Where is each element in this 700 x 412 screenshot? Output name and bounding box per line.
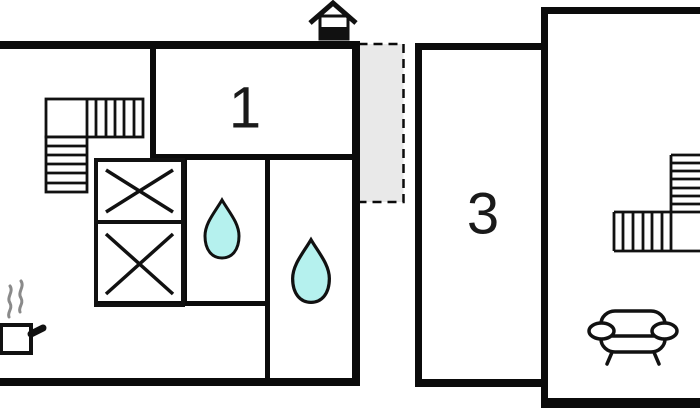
house-entrance-icon: [310, 3, 356, 39]
staircase-left-upper-run: [46, 99, 143, 137]
floorplan-canvas: 1 3: [0, 0, 700, 412]
steam-line: [9, 286, 12, 317]
room3-left-wall: [415, 43, 422, 387]
room3-top-wall: [415, 43, 547, 50]
walls: [0, 7, 700, 408]
sofa-armrest: [652, 323, 677, 339]
room3-bottom-wall: [415, 379, 548, 387]
water-drop-icon: [293, 240, 330, 303]
stove-pot: [1, 325, 31, 353]
right-unit-left-wall: [541, 7, 548, 408]
stove-steam-icon: [1, 281, 43, 353]
steam-line: [20, 281, 23, 312]
room1-label: 1: [229, 76, 261, 141]
floorplan-drawing: 1 3: [0, 0, 700, 412]
right-unit-top-wall: [541, 7, 700, 14]
sofa-armrest: [589, 323, 614, 339]
room1-left-wall: [150, 49, 156, 155]
bed-cross-icon-group: [96, 160, 183, 305]
porch-area: [359, 44, 404, 202]
right-unit-bottom-wall: [541, 398, 700, 408]
water-drop-icon: [205, 200, 239, 258]
left-unit-right-wall: [352, 41, 360, 386]
room3-label: 3: [467, 182, 499, 247]
shower2-left-wall: [265, 157, 270, 380]
staircase-right: [614, 155, 700, 251]
left-unit-bottom-wall: [0, 378, 360, 386]
left-unit-top-wall: [0, 41, 360, 49]
sofa-icon: [589, 311, 677, 364]
